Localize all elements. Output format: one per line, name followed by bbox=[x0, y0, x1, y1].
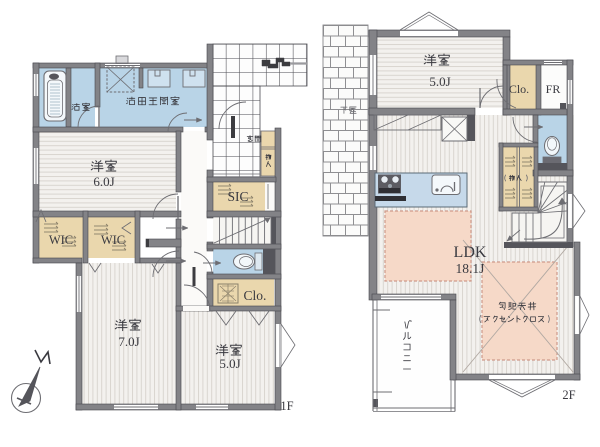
svg-text:7.0J: 7.0J bbox=[118, 334, 139, 349]
svg-text:18.1J: 18.1J bbox=[456, 261, 485, 276]
svg-text:5.0J: 5.0J bbox=[429, 74, 450, 89]
svg-text:2F: 2F bbox=[562, 388, 575, 402]
svg-text:5.0J: 5.0J bbox=[219, 356, 240, 371]
svg-text:WIC: WIC bbox=[101, 233, 125, 247]
svg-text:LDK: LDK bbox=[454, 244, 487, 261]
svg-text:SIC: SIC bbox=[227, 189, 248, 204]
svg-text:Clo.: Clo. bbox=[244, 288, 267, 303]
svg-text:WIC: WIC bbox=[49, 233, 73, 247]
svg-text:1F: 1F bbox=[280, 399, 293, 413]
svg-text:6.0J: 6.0J bbox=[93, 174, 114, 189]
svg-text:Clo.: Clo. bbox=[509, 82, 529, 96]
svg-text:FR: FR bbox=[546, 82, 561, 96]
